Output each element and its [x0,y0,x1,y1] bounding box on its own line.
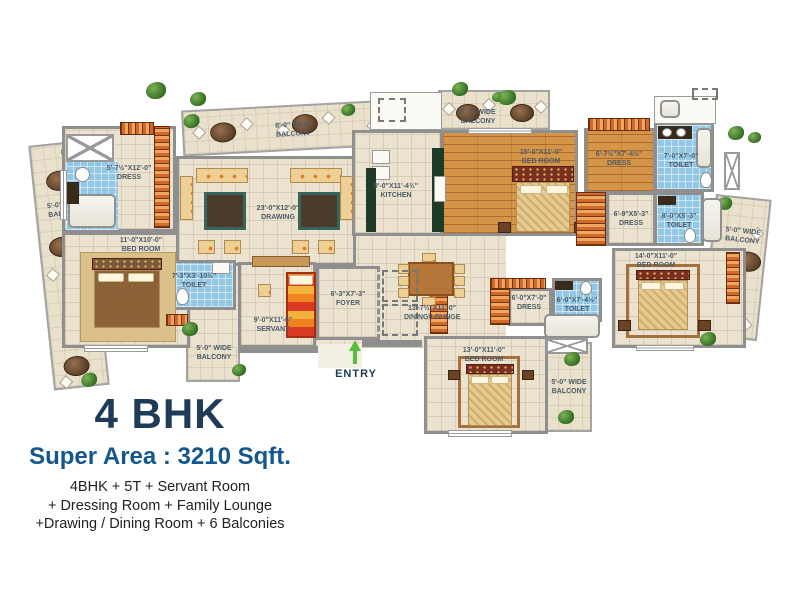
toilet-bowl [700,172,712,188]
wardrobe [490,278,546,289]
plan-title-block: 4 BHK Super Area : 3210 Sqft. 4BHK + 5T … [28,390,292,534]
plant [558,410,574,424]
balcony-name: BALCONY [268,129,318,141]
bed-pillow [664,282,684,290]
nightstand [522,370,534,380]
room-name: TOILET [168,281,220,290]
plant [452,82,468,96]
sofa [340,176,353,220]
bed-pillow [520,185,542,194]
drawing-label: 23'-0"X12'-0" DRAWING [250,204,306,222]
washbasin [660,100,680,118]
bed3-label: 14'-0"X11'-0" BED ROOM [624,252,688,270]
room-dims: 6'-0"X7'-4½" [554,296,600,305]
bed-pillow [546,185,568,194]
vanity-counter [555,281,573,290]
room-name: DRESS [100,173,158,182]
dining-chair [422,253,436,262]
plant [190,92,206,106]
room-name: TOILET [658,161,704,170]
servant-label: 9'-0"X11'-6" SERVANT [242,316,304,334]
entry-label: ENTRY [328,368,384,380]
toilet3-label: 8'-0"X5'-3" TOILET [656,212,702,230]
washbasin [75,167,90,182]
window [468,128,532,134]
balcony-top-wide-label: 8'-0" WIDE BALCONY [268,119,319,140]
room-dims: 9'-0"X11'-4½" [368,182,424,191]
nightstand [698,320,711,331]
dining-label: 13'-7½"X11'-0" DINING\LOUNGE [404,304,460,322]
dining-chair [454,276,465,286]
room-dims: 6'-3"X7'-3" [320,290,376,299]
room-dims: 15'-0"X11'-0" [508,148,574,157]
balcony-chair [534,100,548,114]
nightstand [498,222,511,233]
balcony-name: BALCONY [454,117,502,126]
balcony-dims: 5'-0" WIDE [548,378,590,387]
room-dims: 6'-0"X7'-0" [507,294,551,303]
room-dims: 13'-0"X11'-0" [452,346,516,355]
dress3-label: 6'-9"X5'-3" DRESS [608,210,654,228]
features-line-1: 4BHK + 5T + Servant Room [28,478,292,497]
balcony-chair [59,375,73,389]
plant [564,352,580,366]
plant [232,364,246,376]
plant [182,322,198,336]
bathtub [544,314,600,338]
shaft-cross-brace [724,152,740,190]
dress1-label: 5'-7½"X12'-0" DRESS [100,164,158,182]
room-dims: 7'-3"X3'-10½" [168,272,220,281]
washbasin [662,128,672,137]
shaft-dashed [378,98,406,122]
balcony-top-right-label: 5'-0" WIDE BALCONY [454,108,502,126]
plant [498,90,516,105]
room-name: BED ROOM [452,355,516,364]
toilet4-label: 6'-0"X7'-4½" TOILET [554,296,600,314]
window [60,170,67,220]
room-dims: 23'-0"X12'-0" [250,204,306,213]
toilet-bowl [580,281,592,295]
room-dims: 5'-7½"X12'-0" [100,164,158,173]
balcony-table [210,122,237,143]
foyer-label: 6'-3"X7'-3" FOYER [320,290,376,308]
room-dims: 8'-0"X5'-3" [656,212,702,221]
balcony-bottom-label: 5'-0" WIDE BALCONY [548,378,590,396]
washbasin [676,128,686,137]
console-table [252,256,310,267]
floorplan-canvas: 8'-0" WIDE BALCONY 5'-0" WIDE BALCONY 5'… [0,0,800,600]
dining-chair [454,264,465,274]
room-dims: 9'-0"X11'-6" [242,316,304,325]
features-line-3: +Drawing / Dining Room + 6 Balconies [28,515,292,534]
room-name: BED ROOM [508,157,574,166]
room-name: DRESS [608,219,654,228]
wardrobe [120,122,154,135]
plan-type-title: 4 BHK [28,390,292,438]
sofa [180,176,193,220]
bed-pillow [471,376,489,384]
room-name: DRESS [590,159,648,168]
vanity-counter [66,182,79,204]
plant [700,332,716,346]
plant [728,126,744,140]
balcony-dims: 5'-0" WIDE [454,108,502,117]
room-name: TOILET [554,305,600,314]
balcony-chair [321,111,335,125]
entry-arrow-stem [353,350,357,364]
armchair [292,240,309,254]
room-name: BED ROOM [624,261,688,270]
balcony-table [510,104,534,122]
room-dims: 11'-0"X10'-0" [104,236,178,245]
room-name: KITCHEN [368,191,424,200]
wardrobe [588,118,650,131]
balcony-chair [46,268,60,282]
plant [80,372,97,388]
bed1-label: 11'-0"X10'-0" BED ROOM [104,236,178,254]
bed-headboard [92,258,162,270]
bed4-label: 13'-0"X11'-0" BED ROOM [452,346,516,364]
kitchen-label: 9'-0"X11'-4½" KITCHEN [368,182,424,200]
entry-label-text: ENTRY [335,368,377,380]
plant [146,82,166,99]
shaft-cross-brace [66,134,114,162]
floor-cushion [258,284,271,297]
toilet2-label: 7'-0"X7'-0" TOILET [658,152,704,170]
bed-headboard [466,364,514,374]
balcony-chair [192,126,206,140]
fridge [434,176,446,202]
kitchen-sink [372,150,390,164]
room-name: BED ROOM [104,245,178,254]
wall-segment [362,340,422,347]
bed-pillow [491,376,509,384]
sofa [196,168,248,183]
room-dims: 6'-7½"X7'-4½" [590,150,648,159]
armchair [224,240,241,254]
balcony-name: BALCONY [191,353,237,362]
bed-pillow [98,273,124,282]
wardrobe [726,252,740,304]
room-dims: 6'-9"X5'-3" [608,210,654,219]
toilet1-label: 7'-3"X3'-10½" TOILET [168,272,220,290]
plant [341,104,356,117]
room-name: DRAWING [250,213,306,222]
room-name: DINING\LOUNGE [404,313,460,322]
toilet-bowl [684,228,696,243]
shaft-cross-brace [546,338,588,354]
ledge-dashed [692,88,718,100]
nightstand [448,370,460,380]
bed-pillow [641,282,661,290]
dress2-label: 6'-7½"X7'-4½" DRESS [590,150,648,168]
balcony-right-label: 5'-0" WIDE BALCONY [719,225,767,248]
sofa [290,168,342,183]
wardrobe [576,192,606,246]
room-name: DRESS [507,303,551,312]
bed-pillow [128,273,154,282]
dining-chair [454,288,465,298]
bed2-label: 15'-0"X11'-0" BED ROOM [508,148,574,166]
room-name: TOILET [656,221,702,230]
super-area-text: Super Area : 3210 Sqft. [28,443,292,471]
balcony-top-right: 5'-0" WIDE BALCONY [438,90,550,130]
balcony-bottom: 5'-0" WIDE BALCONY [544,342,592,432]
balcony-chair [240,117,254,131]
balcony-small-left-label: 5'-0" WIDE BALCONY [191,344,237,362]
wall-segment [238,346,318,353]
dress4-label: 6'-0"X7'-0" DRESS [507,294,551,312]
room-dims: 7'-0"X7'-0" [658,152,704,161]
bathtub [702,198,722,242]
bed-headboard [512,166,574,182]
window [448,430,512,437]
armchair [198,240,215,254]
bed-pillow [289,275,313,285]
balcony-name: BALCONY [548,387,590,396]
vanity-counter [658,196,676,205]
bed-headboard [636,270,690,280]
shaft-dashed [382,270,418,302]
room-dims: 13'-7½"X11'-0" [404,304,460,313]
room-name: FOYER [320,299,376,308]
plant [748,132,761,143]
room-name: SERVANT [242,325,304,334]
carpet [204,192,246,230]
features-line-2: + Dressing Room + Family Lounge [28,497,292,516]
toilet-bowl [176,288,189,305]
window [636,345,694,351]
room-dims: 14'-0"X11'-0" [624,252,688,261]
window [84,345,148,352]
balcony-dims: 5'-0" WIDE [191,344,237,353]
nightstand [618,320,631,331]
armchair [318,240,335,254]
